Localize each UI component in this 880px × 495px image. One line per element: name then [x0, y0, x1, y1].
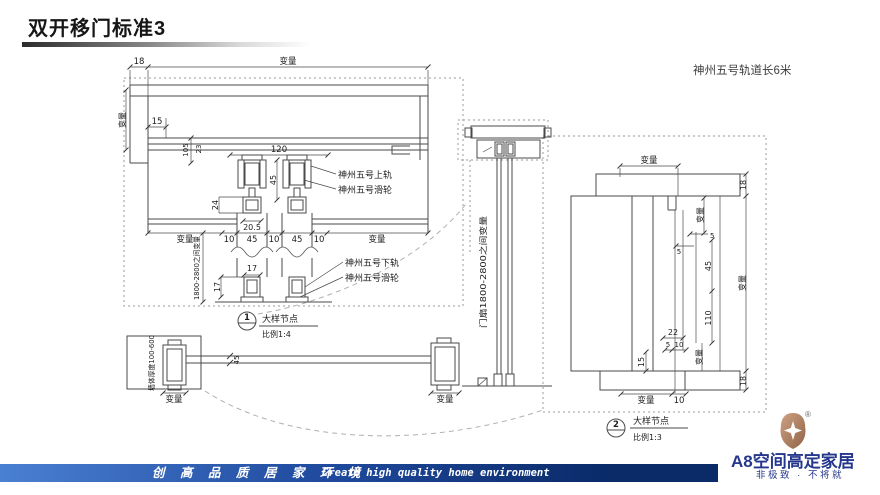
dim-5-b: 5	[677, 248, 681, 256]
dim-var-wall: 变量	[165, 394, 183, 405]
registered-mark: ®	[805, 410, 811, 419]
footer-bar: 创 高 品 质 居 家 环 境 Create high quality home…	[0, 464, 718, 482]
dim-22: 22	[668, 328, 678, 337]
dim-var-top: 变量	[279, 56, 297, 67]
dim-17-h: 17	[213, 282, 222, 292]
dim-height-range: 1800-2800之间变量	[192, 236, 201, 300]
detail-2-no: 2	[613, 420, 619, 430]
lower-roller-assembly	[241, 277, 308, 302]
dim-row-45a: 45	[247, 235, 258, 245]
dim-23: 23	[195, 145, 203, 154]
dim-var-right: 变量	[737, 275, 747, 291]
brand-tagline: 非极致 · 不将就	[756, 467, 844, 481]
upper-roller-assembly	[283, 155, 311, 213]
upper-roller-assembly	[238, 155, 266, 213]
dim-15: 15	[152, 117, 163, 127]
label-upper-track: 神州五号上轨	[338, 169, 392, 181]
dim-var-c: 变量	[694, 349, 704, 365]
dim-var-top-section: 变量	[640, 155, 658, 166]
dim-105: 105	[182, 143, 190, 156]
dim-row-var-r: 变量	[368, 234, 386, 245]
label-lower-track: 神州五号下轨	[345, 257, 399, 269]
dim-row-45b: 45	[292, 235, 303, 245]
slide: 双开移门标准3 神州五号轨道长6米	[0, 0, 880, 495]
dim-24: 24	[211, 200, 220, 210]
dim-row-var-l: 变量	[176, 234, 194, 245]
dashed-boundaries	[124, 78, 766, 436]
dim-110: 110	[704, 310, 713, 325]
label-upper-roller: 神州五号滑轮	[338, 184, 392, 196]
dim-row-10c: 10	[314, 235, 325, 245]
wall-plan-view	[127, 336, 462, 396]
dim-18-top: 18	[739, 180, 748, 190]
break-line	[231, 247, 273, 257]
door-elevation	[462, 126, 552, 386]
detail-2-scale: 比例1:3	[633, 432, 662, 442]
label-lower-roller: 神州五号滑轮	[345, 272, 399, 284]
dim-row-10b: 10	[269, 235, 280, 245]
label-wall-thickness: 墙体厚度100-600	[147, 335, 156, 391]
dim-20-5: 20.5	[243, 223, 261, 232]
cad-drawing: 18 变量 变量 15 105 23 120 45 24 20.5 神州五号上轨…	[0, 0, 880, 495]
dim-5-c: 5	[666, 341, 670, 349]
detail-1-scale: 比例1:4	[262, 329, 291, 339]
break-line	[276, 247, 318, 257]
plan-view	[124, 65, 431, 331]
dim-var-left: 变量	[117, 112, 127, 128]
dim-15-section: 15	[637, 357, 646, 367]
dim-18-bottom: 18	[739, 376, 748, 386]
dim-5-a: 5	[710, 232, 714, 240]
detail-1-title: 大样节点	[262, 313, 298, 325]
dim-var-a: 变量	[695, 207, 705, 223]
detail-1-no: 1	[244, 313, 250, 323]
dim-18: 18	[134, 57, 145, 67]
dim-120: 120	[271, 145, 287, 155]
detail-2-title: 大样节点	[633, 415, 669, 427]
dim-var-post: 变量	[436, 394, 454, 405]
dim-45-roller: 45	[269, 175, 278, 185]
dim-row-10a: 10	[224, 235, 235, 245]
dim-10-b: 10	[674, 396, 685, 406]
dim-45-panel: 45	[233, 356, 241, 365]
dim-door-range: 门扇1800-2800之间变量	[478, 216, 488, 328]
dim-var-bottom: 变量	[637, 395, 655, 406]
dim-10-a: 10	[675, 341, 684, 349]
dim-17-w: 17	[247, 264, 257, 273]
footer-slogan-en: Create high quality home environment	[322, 464, 550, 482]
side-section	[571, 164, 749, 438]
dim-45-section: 45	[704, 261, 713, 271]
